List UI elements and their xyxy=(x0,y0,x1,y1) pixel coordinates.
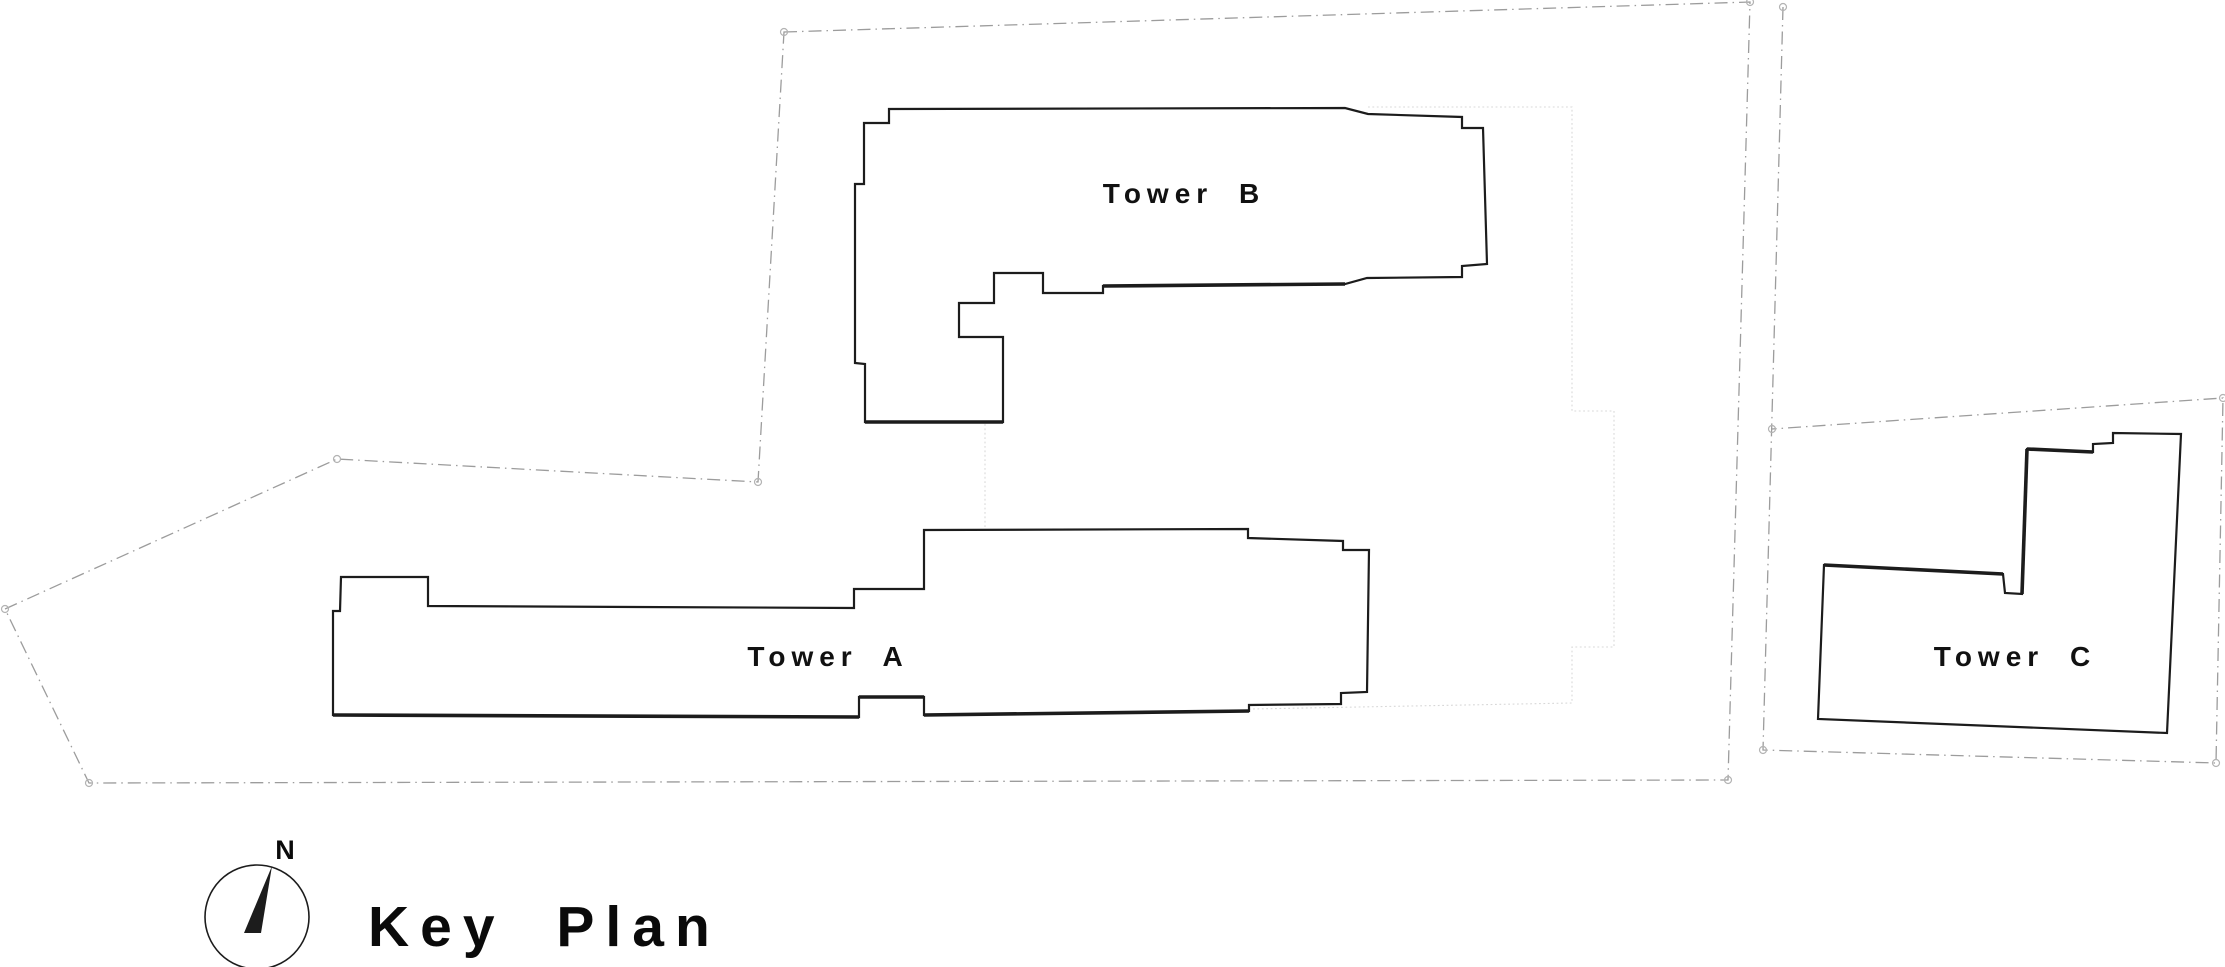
tower-a-footprint xyxy=(333,529,1369,717)
page-title: Key Plan xyxy=(368,895,721,959)
tower-b-footprint xyxy=(855,108,1487,422)
compass-needle-icon xyxy=(244,866,272,933)
survey-marker-4 xyxy=(2,606,9,613)
heavy-edge-1 xyxy=(1103,284,1345,286)
tower-c-footprint xyxy=(1818,433,2181,733)
survey-marker-5 xyxy=(334,456,341,463)
heavy-edge-2 xyxy=(333,715,859,717)
key-plan-sheet: Tower ATower BTower CNKey Plan xyxy=(0,0,2225,967)
compass-north-label: N xyxy=(275,835,295,865)
tower-b-label: Tower B xyxy=(1103,178,1265,209)
tower-c-label: Tower C xyxy=(1934,641,2096,672)
tower-a-label: Tower A xyxy=(747,641,908,672)
key-plan-drawing: Tower ATower BTower CNKey Plan xyxy=(0,0,2225,967)
